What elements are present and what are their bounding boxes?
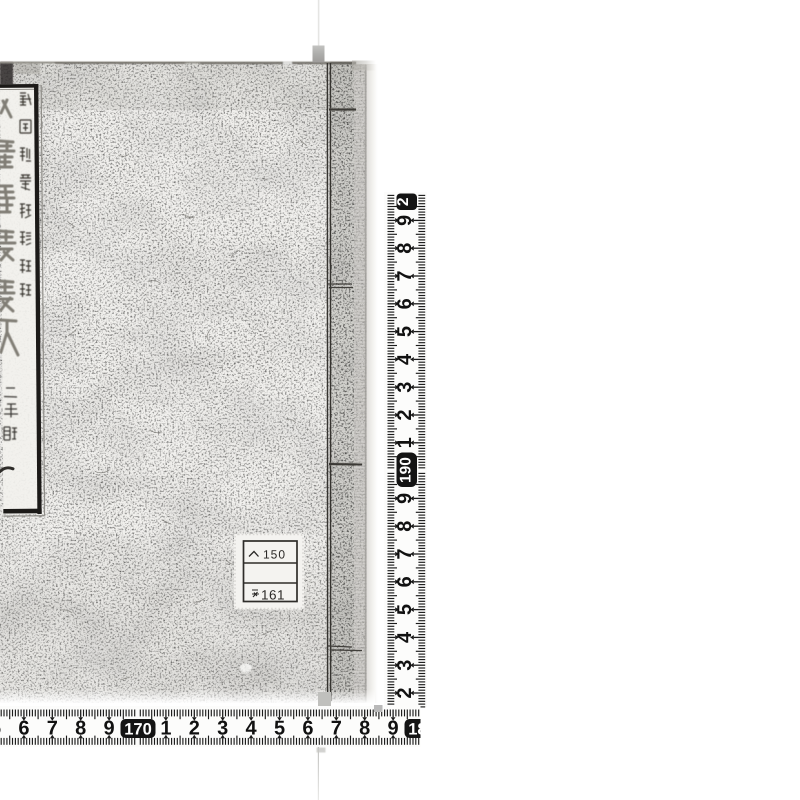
svg-text:190: 190 [398,457,415,483]
svg-text:9: 9 [388,717,399,739]
svg-text:3: 3 [394,660,416,671]
svg-text:2: 2 [395,197,412,206]
svg-text:7: 7 [47,717,58,739]
svg-text:9: 9 [394,493,416,504]
svg-text:6: 6 [394,576,416,587]
svg-text:8: 8 [75,717,86,739]
svg-text:8: 8 [359,717,370,739]
svg-text:5: 5 [0,717,1,739]
svg-text:5: 5 [394,326,416,337]
svg-text:5: 5 [394,604,416,615]
svg-text:2: 2 [189,717,200,739]
svg-text:7: 7 [394,270,416,281]
svg-text:4: 4 [394,631,416,643]
svg-text:1: 1 [394,437,416,448]
svg-text:9: 9 [104,717,115,739]
svg-text:5: 5 [274,717,285,739]
svg-text:6: 6 [394,298,416,309]
svg-text:4: 4 [394,353,416,365]
svg-text:7: 7 [394,548,416,559]
svg-text:3: 3 [394,382,416,393]
svg-text:161: 161 [261,588,285,603]
svg-text:3: 3 [217,717,228,739]
svg-text:170: 170 [124,720,152,738]
svg-text:6: 6 [302,717,313,739]
svg-text:2: 2 [394,409,416,420]
svg-text:8: 8 [394,243,416,254]
svg-text:4: 4 [246,717,258,739]
svg-text:7: 7 [331,717,342,739]
svg-text:150: 150 [263,548,286,562]
svg-text:1: 1 [160,717,171,739]
svg-text:9: 9 [394,215,416,226]
svg-text:2: 2 [394,687,416,698]
svg-text:6: 6 [18,717,29,739]
svg-text:8: 8 [394,521,416,532]
